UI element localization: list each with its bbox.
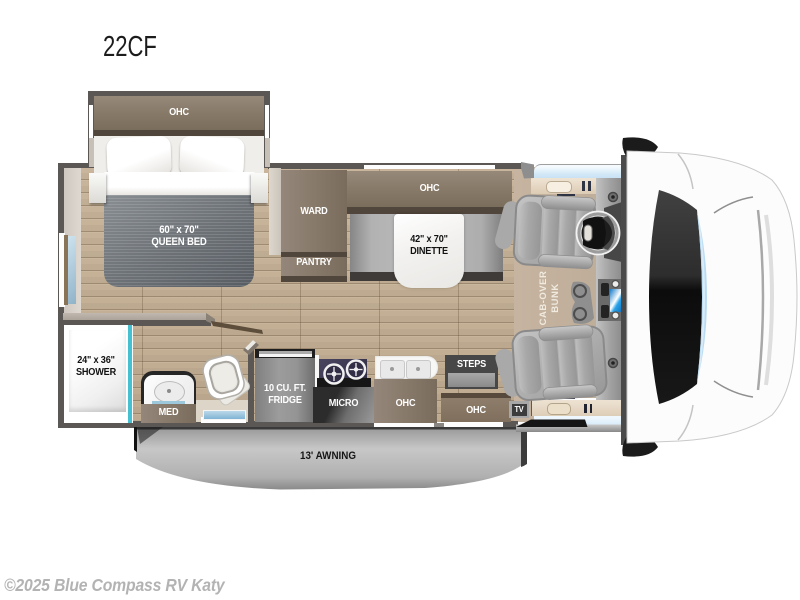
svg-text:13' AWNING: 13' AWNING bbox=[300, 450, 356, 462]
